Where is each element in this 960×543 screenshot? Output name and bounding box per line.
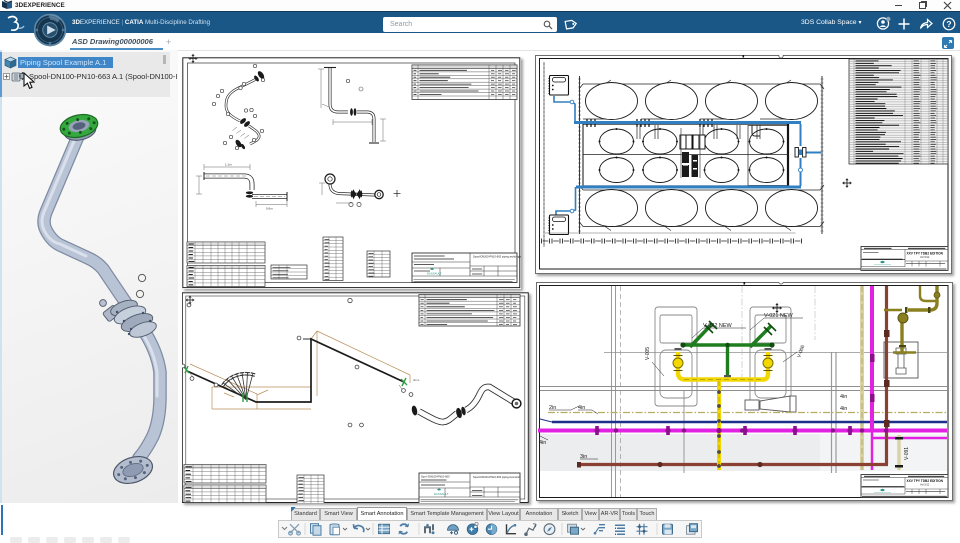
- svg-text:V-005: V-005: [645, 347, 651, 360]
- svg-text:1.1m: 1.1m: [225, 163, 232, 167]
- svg-text:Vol 5/12: Vol 5/12: [920, 483, 930, 487]
- svg-text:0.6m: 0.6m: [266, 207, 273, 211]
- svg-text:XXV TPY TDB2 EDITION: XXV TPY TDB2 EDITION: [907, 479, 944, 483]
- svg-text:Spool-DN100-PN10-663 piping is: Spool-DN100-PN10-663 piping isometric: [473, 475, 521, 479]
- svg-text:?: ?: [946, 18, 951, 28]
- svg-text:Spo-l-DN100-PN10-663: Spo-l-DN100-PN10-663: [421, 475, 450, 479]
- svg-text:4in: 4in: [539, 440, 546, 446]
- svg-text:4in: 4in: [840, 394, 847, 400]
- svg-text:DASSAULT: DASSAULT: [434, 492, 449, 496]
- svg-text:Vol 5/12: Vol 5/12: [920, 255, 930, 259]
- svg-text:V-091: V-091: [904, 447, 910, 460]
- svg-text:DASSAULT: DASSAULT: [427, 272, 442, 276]
- svg-text:XXV TPY TDB2 EDITION: XXV TPY TDB2 EDITION: [907, 252, 944, 256]
- svg-text:Spool-DN100-PN10-663 piping ar: Spool-DN100-PN10-663 piping arch(regime): [473, 255, 521, 259]
- svg-text:4in: 4in: [840, 406, 847, 412]
- svg-text:dims: dims: [413, 378, 420, 382]
